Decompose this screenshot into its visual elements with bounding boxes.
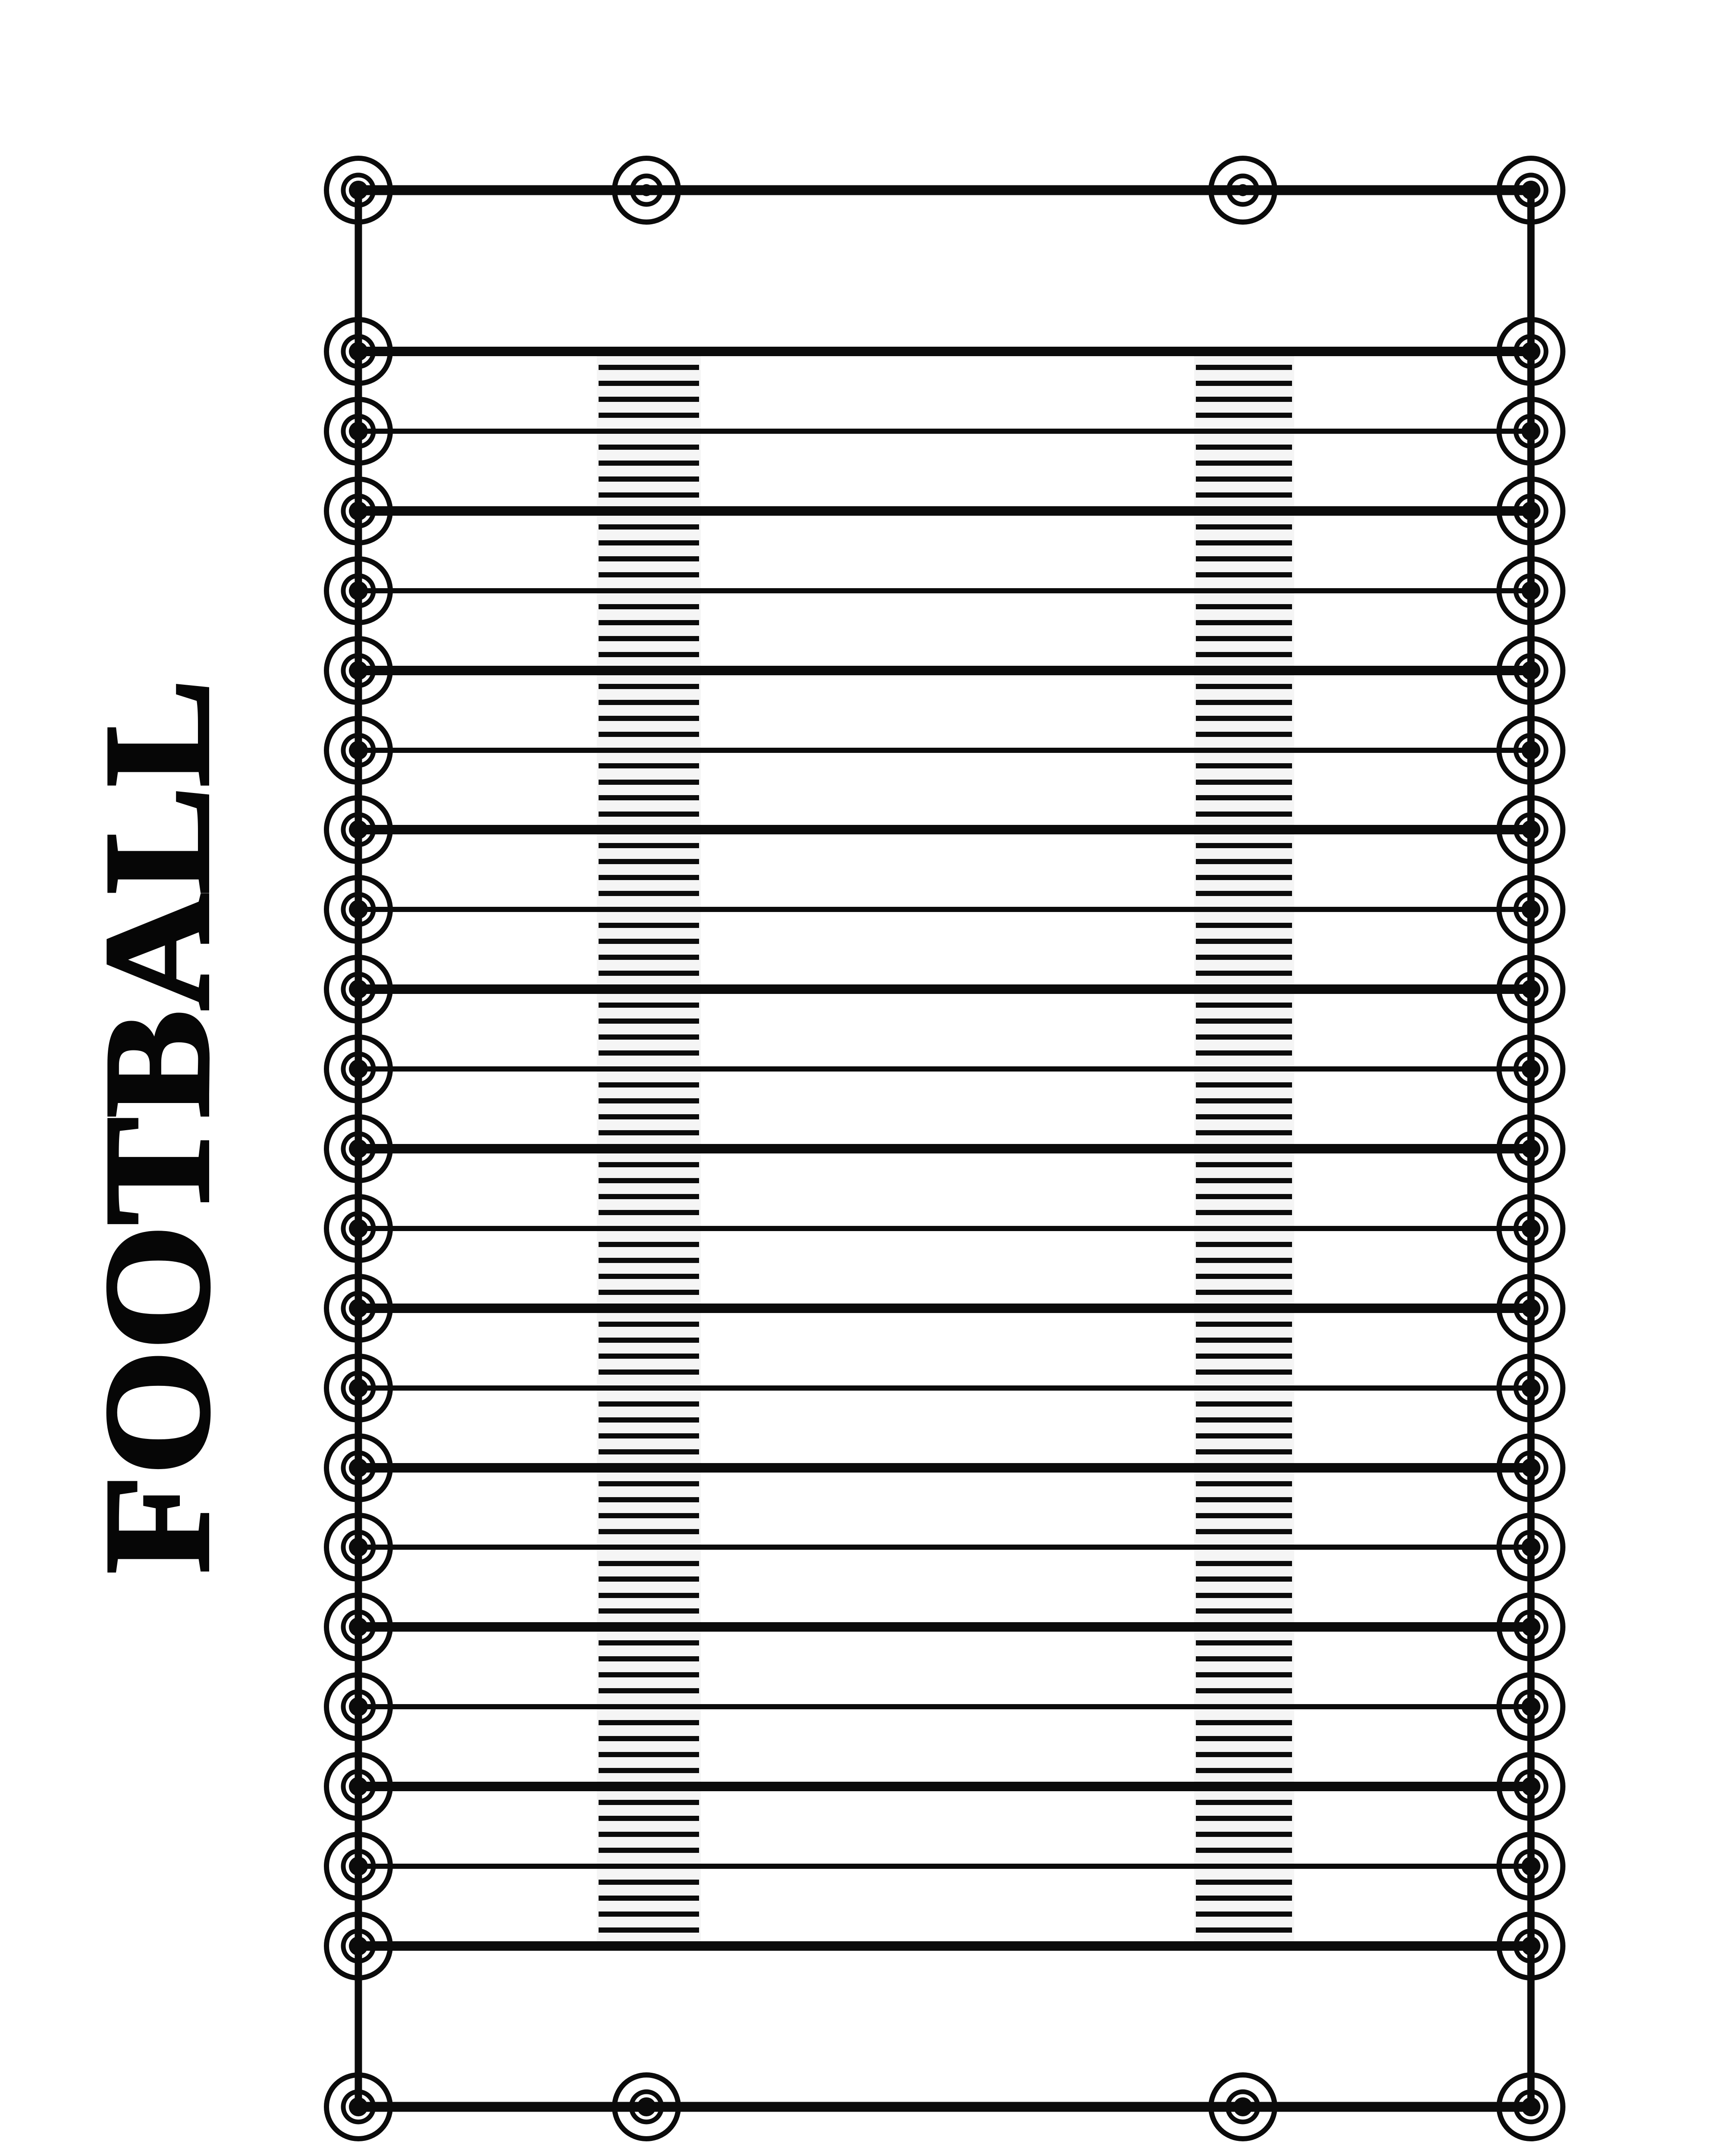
svg-text:FOOTBALL: FOOTBALL: [74, 679, 240, 1573]
